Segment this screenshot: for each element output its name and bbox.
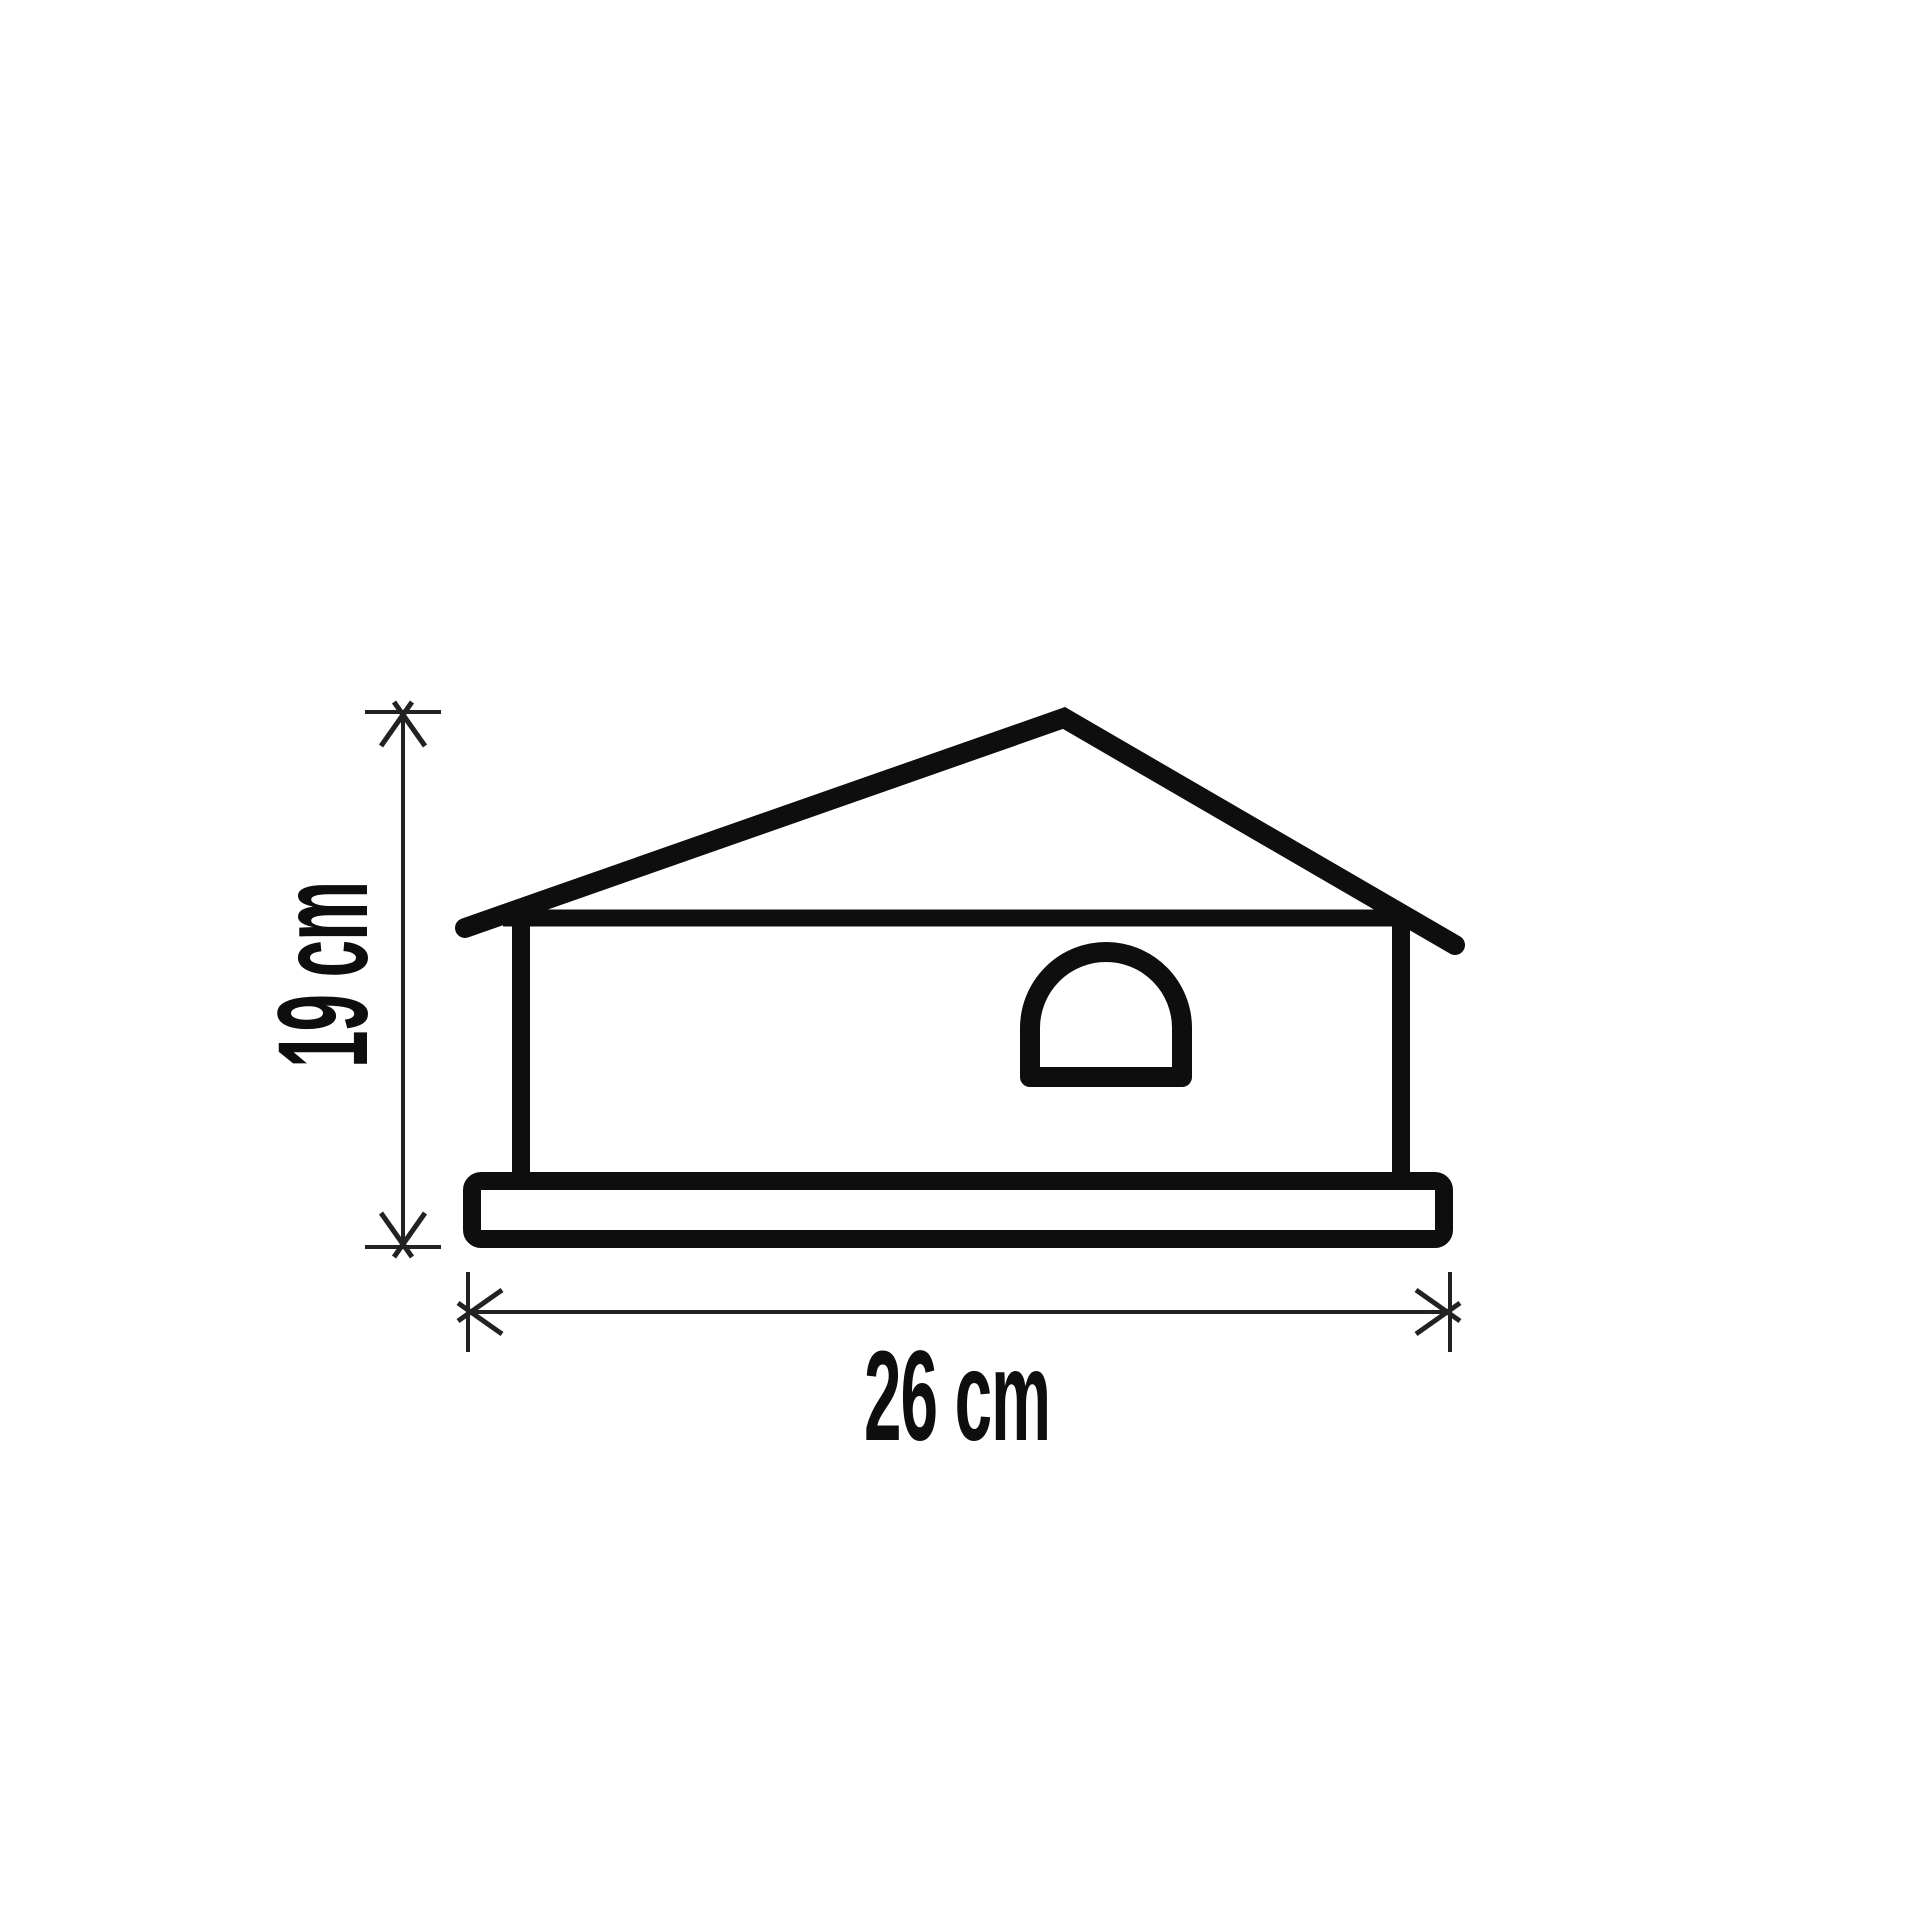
height-dimension: 19 cm	[252, 702, 441, 1257]
house-outline	[465, 718, 1455, 1239]
diagram-canvas: 19 cm 26 cm	[0, 0, 1920, 1920]
height-dim-label: 19 cm	[252, 882, 395, 1068]
width-dimension: 26 cm	[458, 1272, 1460, 1468]
house-dimension-diagram: 19 cm 26 cm	[0, 0, 1920, 1920]
window-arch	[1030, 952, 1182, 1077]
width-dim-label: 26 cm	[864, 1325, 1050, 1468]
base-plinth	[472, 1181, 1444, 1239]
